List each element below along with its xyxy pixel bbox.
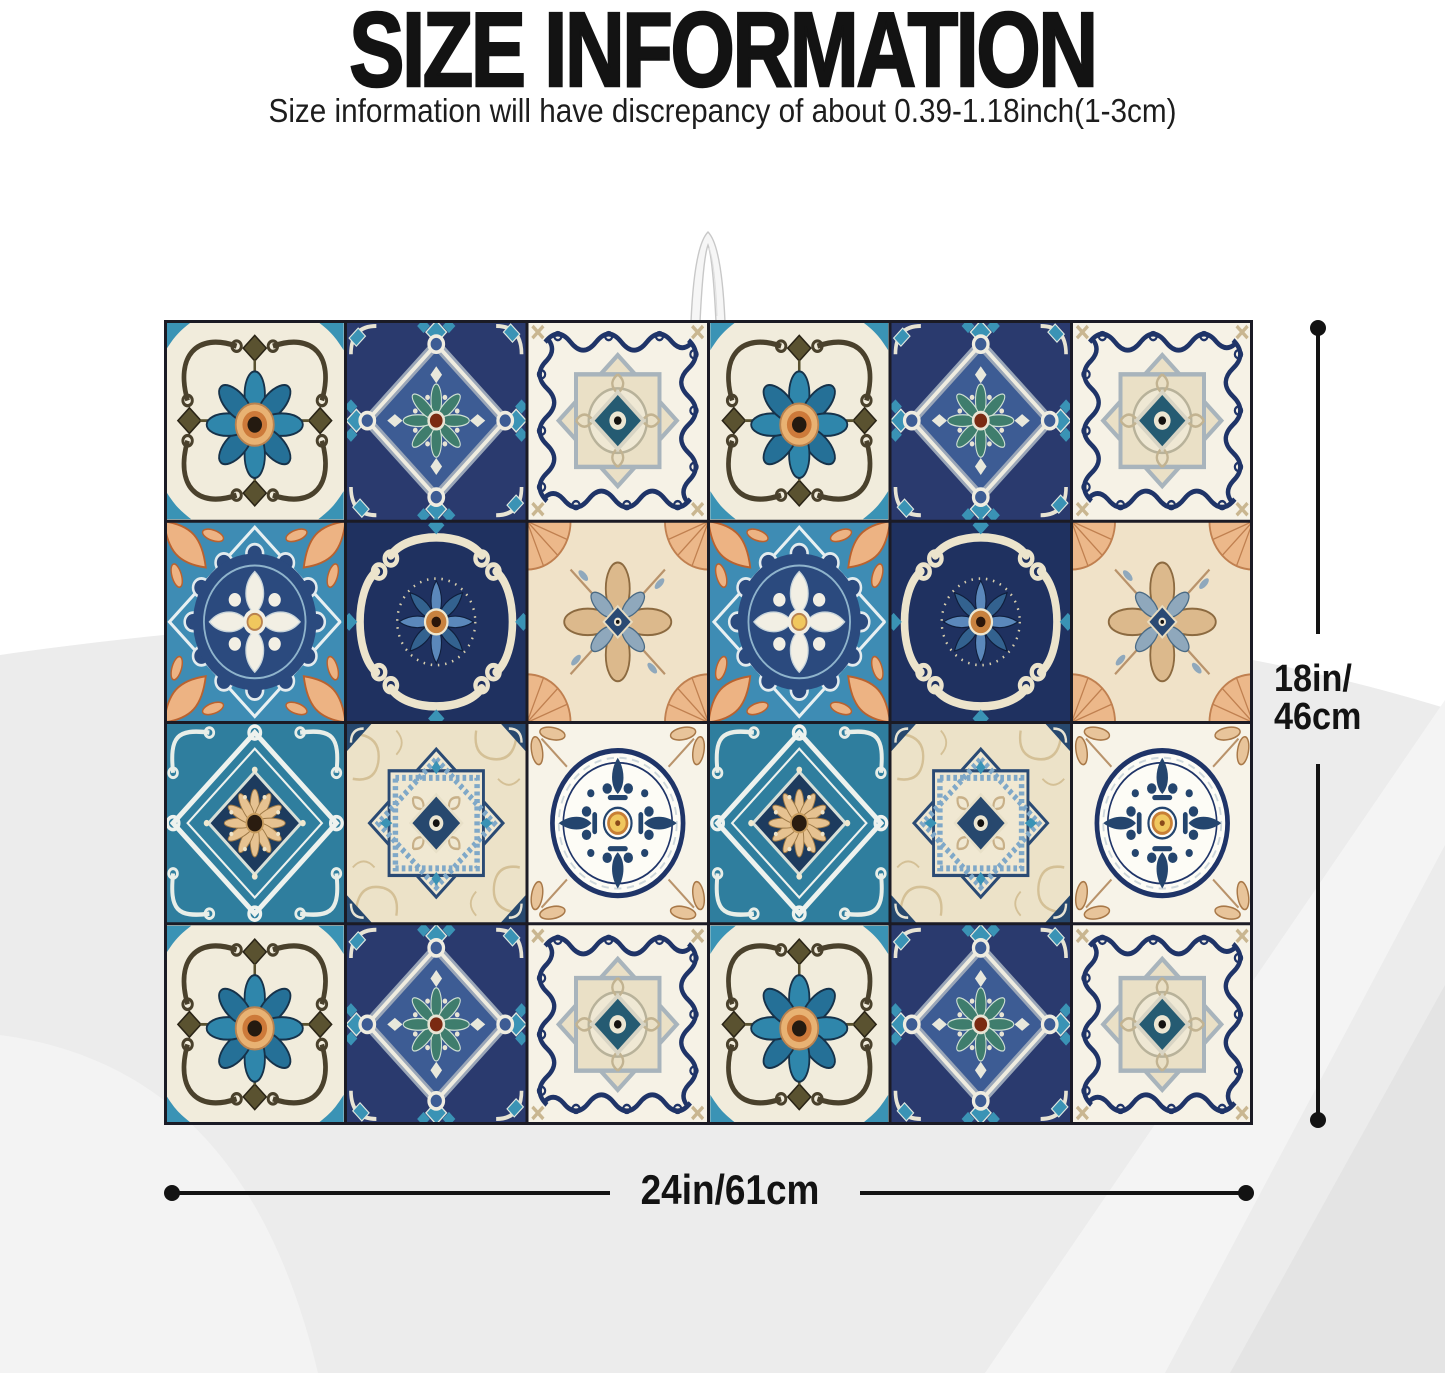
height-dim-line-top-segment — [1316, 326, 1320, 634]
width-dim-line-left-segment — [170, 1191, 610, 1195]
height-dim-line-bottom-segment — [1316, 764, 1320, 1122]
height-dim-label: 18in/ 46cm — [1274, 660, 1361, 736]
tile-teal-lattice-sunflower — [709, 723, 891, 924]
tile-lace-star — [890, 723, 1072, 924]
tile-circle-fleur — [527, 723, 709, 924]
tile-navy-diamond — [345, 320, 528, 522]
tile-scroll-star — [527, 320, 709, 521]
height-dim-label-cm: 46cm — [1274, 698, 1361, 736]
height-dim-bottom-dot — [1310, 1112, 1326, 1128]
tile-cream-fan-flower — [527, 521, 709, 722]
tile-navy-diamond — [889, 923, 1072, 1125]
tile-flower-white — [709, 320, 891, 521]
tile-scroll-star — [1072, 924, 1254, 1125]
tile-lace-star — [346, 723, 528, 924]
tile-flower-white — [709, 924, 891, 1125]
tile-flower-white — [164, 924, 346, 1125]
tile-azure-medallion — [709, 521, 891, 722]
tile-azure-medallion — [164, 521, 346, 722]
width-dim-line-right-segment — [860, 1191, 1248, 1195]
width-dim-right-dot — [1238, 1185, 1254, 1201]
tile-navy-scroll-flower — [341, 516, 532, 727]
tile-navy-diamond — [889, 320, 1072, 522]
tile-scroll-star — [1072, 320, 1254, 521]
tile-scroll-star — [527, 924, 709, 1125]
tile-grid — [164, 320, 1253, 1125]
tile-teal-lattice-sunflower — [164, 723, 346, 924]
ribbon-loop-shape — [691, 232, 725, 322]
tile-navy-diamond — [345, 923, 528, 1125]
product-photo-dish-mat — [164, 320, 1253, 1125]
height-dim-label-inches: 18in/ — [1274, 660, 1361, 698]
tile-cream-fan-flower — [1072, 521, 1254, 722]
tile-circle-fleur — [1072, 723, 1254, 924]
hanging-loop — [682, 226, 734, 322]
subtitle: Size information will have discrepancy o… — [72, 92, 1373, 130]
width-dim-label: 24in/61cm — [614, 1166, 846, 1214]
size-information-infographic: SIZE INFORMATION Size information will h… — [0, 0, 1445, 1373]
tile-navy-scroll-flower — [885, 516, 1076, 727]
tile-flower-white — [164, 320, 346, 521]
height-dim-top-dot — [1310, 320, 1326, 336]
